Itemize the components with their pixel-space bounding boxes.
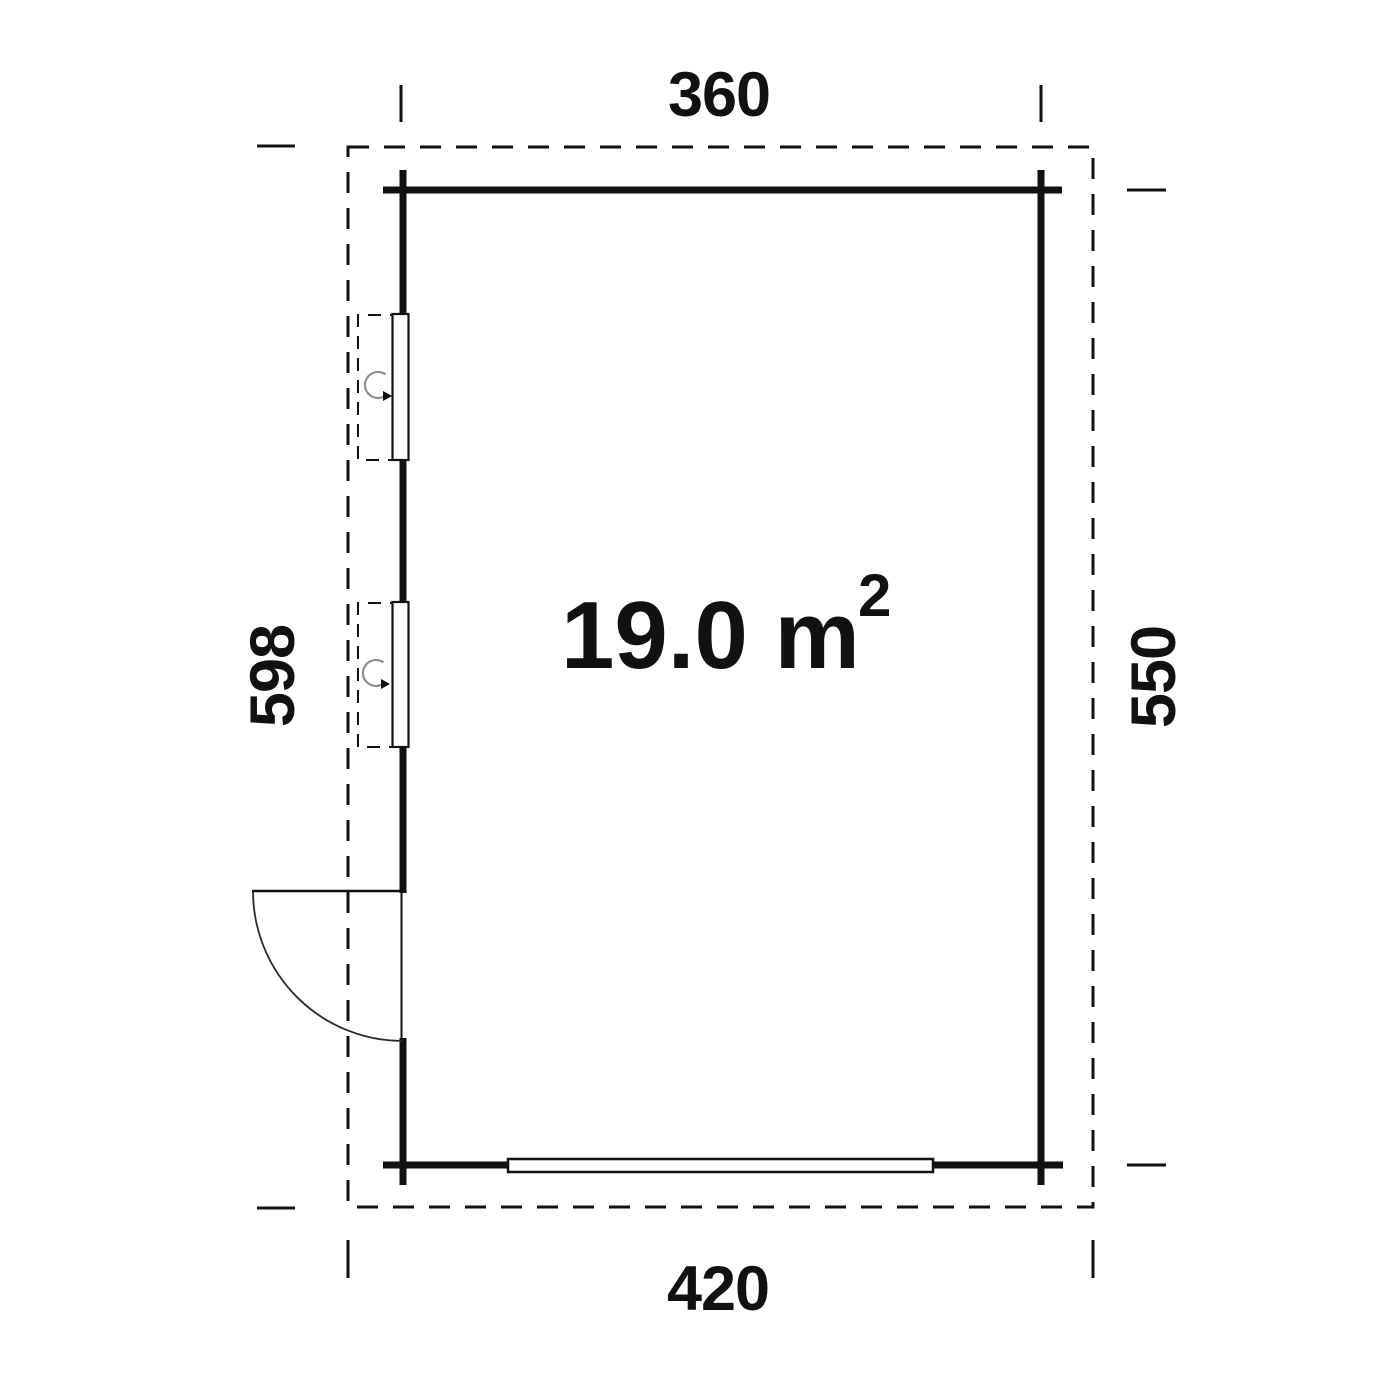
dim-left-label: 598 [238,625,308,727]
dim-top-label: 360 [668,60,770,130]
window-upper-swing-arrowhead-icon [383,391,392,401]
window-lower-swing-symbol [363,660,384,686]
window-upper-frame [393,314,409,460]
window-lower-swing-arrowhead-icon [381,679,390,689]
window-lower-frame [393,602,409,747]
dim-right-label: 550 [1119,626,1189,728]
window-upper-swing-symbol [365,372,386,398]
window-upper [358,314,409,460]
entrance-door [252,891,403,1041]
area-superscript: 2 [858,562,891,629]
window-lower [358,602,409,747]
area-label: 19.0 m 2 [561,562,891,689]
floor-plan-canvas: 360 420 598 550 19.0 m 2 [0,0,1400,1400]
area-value: 19.0 m [561,582,860,689]
dim-bottom-label: 420 [667,1254,769,1324]
garage-door [508,1159,933,1172]
door-swing-arc [253,891,403,1041]
floor-plan: 360 420 598 550 19.0 m 2 [0,0,1400,1400]
